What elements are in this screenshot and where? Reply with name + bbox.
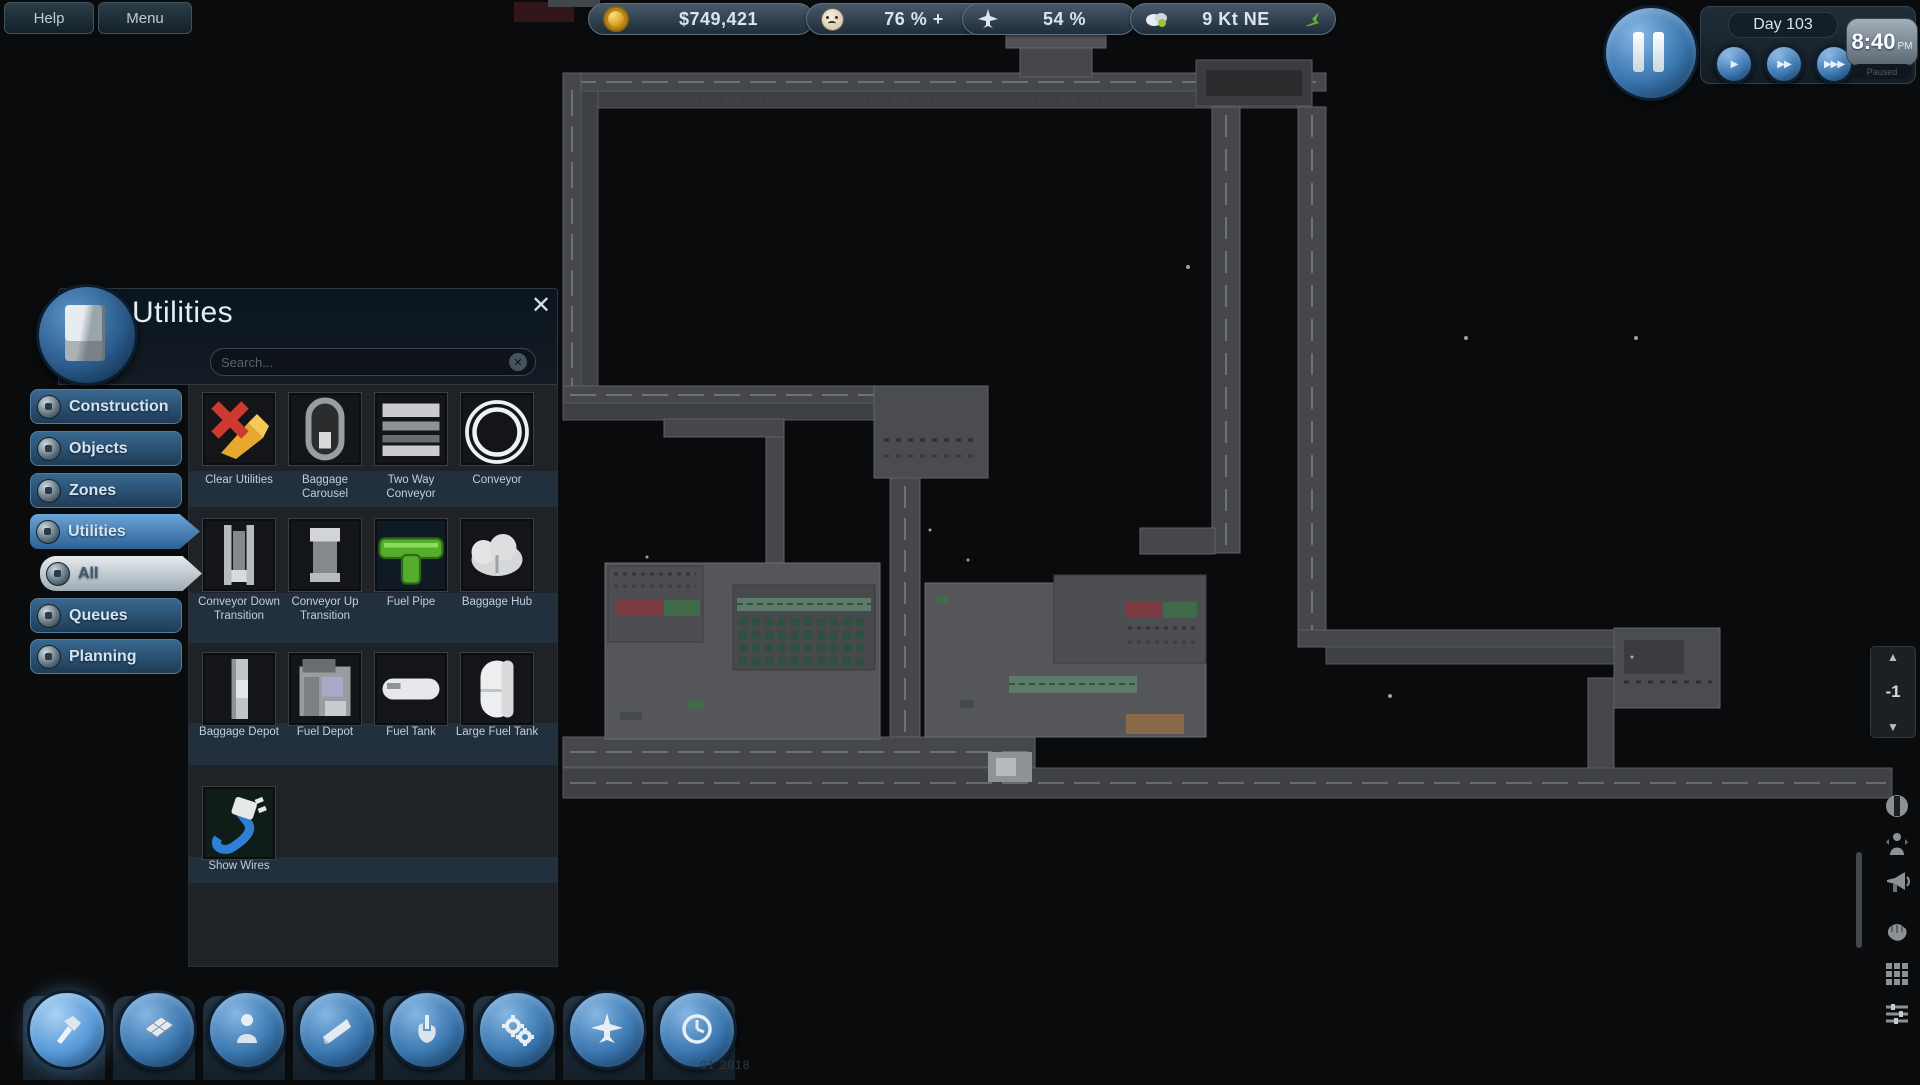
item-label: Clear Utilities (195, 474, 283, 488)
item-label: Large Fuel Tank (453, 726, 541, 740)
two-way-conveyor-icon (375, 393, 447, 465)
baggage-carousel-icon (289, 393, 361, 465)
item-baggage-carousel[interactable] (288, 392, 362, 466)
item-conveyor-up-transition[interactable] (288, 518, 362, 592)
menu-button[interactable]: Menu (98, 2, 192, 34)
gears-icon (499, 1011, 535, 1047)
fridge-icon (65, 305, 105, 361)
passenger-icon (1883, 830, 1911, 858)
floor-selector: ▲ -1 ▼ (1870, 646, 1916, 738)
item-label: Show Wires (195, 860, 283, 874)
person-icon (229, 1011, 265, 1047)
item-label: Baggage Carousel (281, 474, 369, 502)
terrain-tool-button[interactable] (297, 990, 377, 1070)
plane-icon (589, 1011, 625, 1047)
item-label: Conveyor Down Transition (195, 596, 283, 624)
systems-tool-button[interactable] (477, 990, 557, 1070)
item-label: Two Way Conveyor (367, 474, 455, 502)
money-value: $749,421 (638, 9, 799, 30)
baggage-depot-icon (203, 653, 275, 725)
search-box: ✕ (210, 348, 536, 376)
coin-icon (603, 6, 629, 32)
item-large-fuel-tank[interactable] (460, 652, 534, 726)
megaphone-icon (1883, 868, 1911, 896)
glove-icon (1883, 918, 1911, 946)
item-label: Conveyor Up Transition (281, 596, 369, 624)
item-two-way-conveyor[interactable] (374, 392, 448, 466)
clock-meridiem: PM (1898, 41, 1913, 52)
item-baggage-hub[interactable] (460, 518, 534, 592)
floor-down-icon[interactable]: ▼ (1887, 721, 1899, 733)
filters-button[interactable] (1881, 998, 1913, 1030)
hammer-icon (49, 1011, 85, 1047)
pause-bar (1633, 32, 1644, 72)
search-clear-icon[interactable]: ✕ (509, 353, 527, 371)
tab-construction[interactable]: Construction (30, 389, 182, 424)
wind-indicator[interactable]: 9 Kt NE (1130, 3, 1336, 35)
clear-utilities-icon (203, 393, 275, 465)
utilities-tab-icon (36, 520, 60, 544)
utilities-panel: Utilities ✕ ✕ Construction Objects Zones… (30, 288, 558, 967)
version-text: 01 2018 (700, 1058, 750, 1072)
fuel-depot-icon (289, 653, 361, 725)
terminal-right (925, 575, 1206, 737)
item-conveyor[interactable] (460, 392, 534, 466)
item-label: Conveyor (453, 474, 541, 488)
item-label: Baggage Depot (195, 726, 283, 740)
construction-tab-icon (37, 395, 61, 419)
close-icon[interactable]: ✕ (526, 290, 556, 320)
baggage-hub-icon (461, 519, 533, 591)
hand-icon (409, 1011, 445, 1047)
grid-view-button[interactable] (1881, 958, 1913, 990)
item-fuel-depot[interactable] (288, 652, 362, 726)
clock-display: 8:40 PM (1846, 18, 1918, 66)
fuel-pipe-icon (375, 519, 447, 591)
conveyor-up-transition-icon (289, 519, 361, 591)
services-button[interactable] (1881, 916, 1913, 948)
passengers-button[interactable] (1881, 828, 1913, 860)
item-clear-utilities[interactable] (202, 392, 276, 466)
pause-bar (1653, 32, 1664, 72)
item-label: Fuel Pipe (367, 596, 455, 610)
clock-time: 8:40 (1851, 29, 1895, 55)
scroll-strip[interactable] (1856, 852, 1862, 948)
game-screen: Help Menu $749,421 76 % + 54 % 9 Kt NE D… (0, 0, 1920, 1080)
large-fuel-tank-icon (461, 653, 533, 725)
floors-tool-button[interactable] (117, 990, 197, 1070)
airplane-icon (977, 8, 999, 30)
clock-sub-label: Paused (1852, 64, 1912, 79)
item-label: Baggage Hub (453, 596, 541, 610)
ramp-icon (319, 1011, 355, 1047)
floor-tiles-icon (139, 1011, 175, 1047)
happiness-value: 76 % + (853, 9, 975, 30)
tab-zones[interactable]: Zones (30, 473, 182, 508)
wind-cloud-icon (1145, 9, 1169, 29)
conveyor-icon (461, 393, 533, 465)
queues-tab-icon (37, 604, 61, 628)
wind-value: 9 Kt NE (1178, 9, 1294, 30)
help-button[interactable]: Help (4, 2, 94, 34)
pause-button[interactable] (1603, 5, 1699, 101)
flights-tool-button[interactable] (567, 990, 647, 1070)
speed-1x-button[interactable]: ▶ (1714, 44, 1754, 84)
grid-icon (1883, 960, 1911, 988)
all-tab-icon (46, 562, 70, 586)
zones-tab-icon (37, 479, 61, 503)
item-conveyor-down-transition[interactable] (202, 518, 276, 592)
item-fuel-tank[interactable] (374, 652, 448, 726)
tab-all[interactable]: All (40, 556, 202, 591)
tab-queues[interactable]: Queues (30, 598, 182, 633)
panel-title: Utilities (132, 296, 233, 330)
item-fuel-pipe[interactable] (374, 518, 448, 592)
planning-tab-icon (37, 645, 61, 669)
build-tool-button[interactable] (27, 990, 107, 1070)
circle-slot-icon (1883, 792, 1911, 820)
day-counter: Day 103 (1728, 12, 1838, 38)
overlay-toggle-button[interactable] (1881, 790, 1913, 822)
show-wires-icon (203, 787, 275, 859)
search-input[interactable] (219, 354, 509, 371)
utilities-panel-icon (36, 284, 138, 386)
item-baggage-depot[interactable] (202, 652, 276, 726)
hire-tool-button[interactable] (387, 990, 467, 1070)
terminal-left (605, 563, 880, 739)
flights-value: 54 % (1008, 9, 1121, 30)
tab-objects[interactable]: Objects (30, 431, 182, 466)
item-label: Fuel Depot (281, 726, 369, 740)
wind-direction-arrow-icon (1303, 10, 1321, 28)
conveyor-down-transition-icon (203, 519, 275, 591)
speed-2x-button[interactable]: ▶▶ (1764, 44, 1804, 84)
tab-planning[interactable]: Planning (30, 639, 182, 674)
sliders-icon (1883, 1000, 1911, 1028)
item-show-wires[interactable] (202, 786, 276, 860)
fuel-tank-icon (375, 653, 447, 725)
happiness-face-icon (821, 8, 844, 31)
tab-utilities[interactable]: Utilities (30, 514, 200, 549)
floor-level-value: -1 (1885, 682, 1900, 702)
money-indicator[interactable]: $749,421 (588, 3, 814, 35)
staff-tool-button[interactable] (207, 990, 287, 1070)
floor-up-icon[interactable]: ▲ (1887, 651, 1899, 663)
clock-icon (679, 1011, 715, 1047)
objects-tab-icon (37, 437, 61, 461)
item-label: Fuel Tank (367, 726, 455, 740)
flights-indicator[interactable]: 54 % (962, 3, 1136, 35)
announcements-button[interactable] (1881, 866, 1913, 898)
